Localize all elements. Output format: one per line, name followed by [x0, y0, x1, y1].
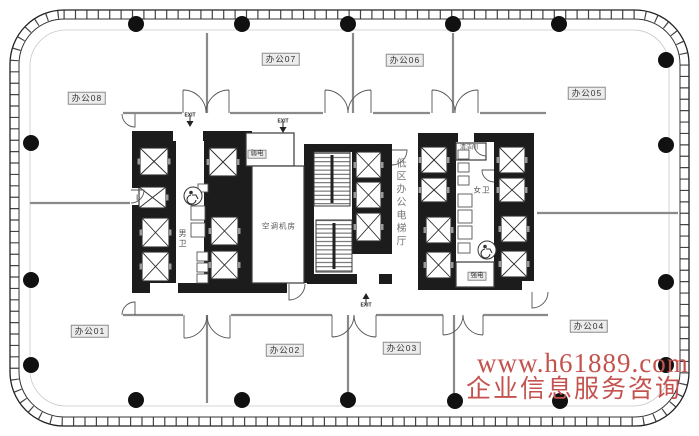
room-label-office-05: 办公05 [568, 87, 606, 100]
elevator-rail [354, 162, 357, 168]
column-marker [658, 137, 674, 153]
column-marker [658, 274, 674, 290]
double-door-icon [183, 90, 206, 113]
exit-sign: EXIT [277, 120, 288, 125]
exit-sign: EXIT [360, 304, 371, 309]
wall-opening [357, 274, 379, 284]
wall-opening [287, 283, 307, 293]
elevator-rail [527, 261, 530, 267]
column-marker [23, 135, 39, 151]
elevator-rail [169, 230, 172, 236]
column-marker [551, 16, 567, 32]
elevator-rail [238, 262, 241, 268]
toilet-fixture [458, 210, 472, 223]
elevator-rail [525, 187, 528, 193]
accessible-wc-icon [189, 191, 193, 195]
room-label-strong-electric: 强电 [468, 272, 487, 281]
exit-sign: EXIT [184, 114, 195, 119]
door-swing-icon [482, 170, 494, 182]
room-label-office-07: 办公07 [262, 53, 300, 66]
wall-opening [173, 131, 203, 141]
elevator-rail [451, 262, 454, 268]
room-label-mens-toilet: 男卫 [178, 229, 186, 249]
elevator-rail [138, 159, 141, 165]
double-door-icon [207, 315, 230, 338]
elevator-rail [237, 159, 240, 165]
elevator-rail [166, 195, 169, 201]
door-swing-icon [532, 292, 548, 308]
double-door-icon [325, 90, 348, 113]
exit-arrow-icon [187, 121, 194, 127]
double-door-icon [354, 315, 376, 337]
watermark-url: www.h61889.com [477, 350, 689, 377]
toilet-fixture [458, 226, 472, 239]
room-label-office-08: 办公08 [68, 92, 106, 105]
double-door-icon [463, 315, 483, 335]
toilet-fixture [458, 163, 469, 172]
column-marker [447, 393, 463, 409]
toilet-fixture [458, 150, 469, 159]
room-label-womens-toilet: 女卫 [474, 186, 491, 194]
toilet-fixture [191, 206, 205, 220]
column-marker [128, 392, 144, 408]
room-label-cleaning-room: 清洁间 [460, 145, 478, 151]
watermark-caption: 企业信息服务咨询 [466, 377, 682, 402]
double-door-icon [206, 90, 229, 113]
elevator-rail [169, 264, 172, 270]
door-swing-icon [122, 114, 135, 127]
room-label-office-01: 办公01 [71, 325, 109, 338]
elevator-rail [381, 192, 384, 198]
column-marker [234, 16, 250, 32]
floor-plan-page: 办公08 办公07 办公06 办公05 办公01 办公02 办公03 办公04 … [0, 0, 699, 436]
room-label-elevator-hall: 低区办公电梯厅 [394, 158, 404, 249]
elevator-rail [238, 228, 241, 234]
elevator-rail [209, 262, 212, 268]
toilet-fixture [191, 223, 205, 237]
elevator-rail [447, 187, 450, 193]
room-label-office-02: 办公02 [266, 344, 304, 357]
elevator-rail [354, 192, 357, 198]
elevator-rail [451, 227, 454, 233]
column-marker [340, 392, 356, 408]
core-wall [304, 144, 314, 284]
elevator-rail [381, 162, 384, 168]
elevator-rail [140, 230, 143, 236]
exit-arrow-icon [363, 293, 370, 299]
core-wall [314, 144, 352, 152]
double-door-icon [455, 90, 478, 113]
wall-opening [458, 133, 474, 142]
elevator-rail [140, 264, 143, 270]
toilet-fixture [458, 243, 470, 253]
room-label-ac-machine-room: 空调机房 [262, 222, 296, 230]
room-label-office-03: 办公03 [383, 342, 421, 355]
door-swing-icon [122, 302, 135, 315]
double-door-icon [332, 315, 354, 337]
toilet-fixture [197, 252, 208, 261]
double-door-icon [432, 90, 455, 113]
accessible-wc-icon [478, 241, 496, 259]
elevator-rail [424, 262, 427, 268]
double-door-icon [184, 315, 207, 338]
accessible-wc-icon [184, 187, 202, 205]
column-marker [23, 357, 39, 373]
toilet-fixture [458, 194, 472, 207]
elevator-rail [447, 157, 450, 163]
elevator-rail [354, 224, 357, 230]
core-wall [176, 283, 204, 293]
elevator-rail [419, 157, 422, 163]
column-marker [445, 16, 461, 32]
room-label-office-04: 办公04 [570, 320, 608, 333]
elevator-rail [137, 195, 140, 201]
toilet-fixture [458, 176, 469, 185]
column-marker [234, 392, 250, 408]
elevator-rail [497, 187, 500, 193]
elevator-rail [207, 159, 210, 165]
wall-opening [522, 281, 534, 290]
room-label-weak-electric: 弱电 [248, 150, 267, 159]
column-marker [658, 52, 674, 68]
room-label-office-06: 办公06 [386, 54, 424, 67]
exit-arrow-icon [280, 127, 287, 133]
elevator-rail [499, 226, 502, 232]
column-marker [23, 272, 39, 288]
elevator-rail [527, 226, 530, 232]
elevator-rail [497, 157, 500, 163]
elevator-rail [209, 228, 212, 234]
elevator-rail [419, 187, 422, 193]
accessible-wc-icon [483, 245, 487, 249]
double-door-icon [348, 90, 371, 113]
elevator-rail [168, 159, 171, 165]
wall-opening [150, 283, 178, 293]
toilet-fixture [197, 263, 208, 272]
elevator-rail [499, 261, 502, 267]
elevator-rail [525, 157, 528, 163]
toilet-fixture [197, 274, 208, 283]
column-marker [340, 16, 356, 32]
core-wall [314, 274, 392, 284]
column-marker [128, 16, 144, 32]
elevator-rail [381, 224, 384, 230]
elevator-rail [424, 227, 427, 233]
